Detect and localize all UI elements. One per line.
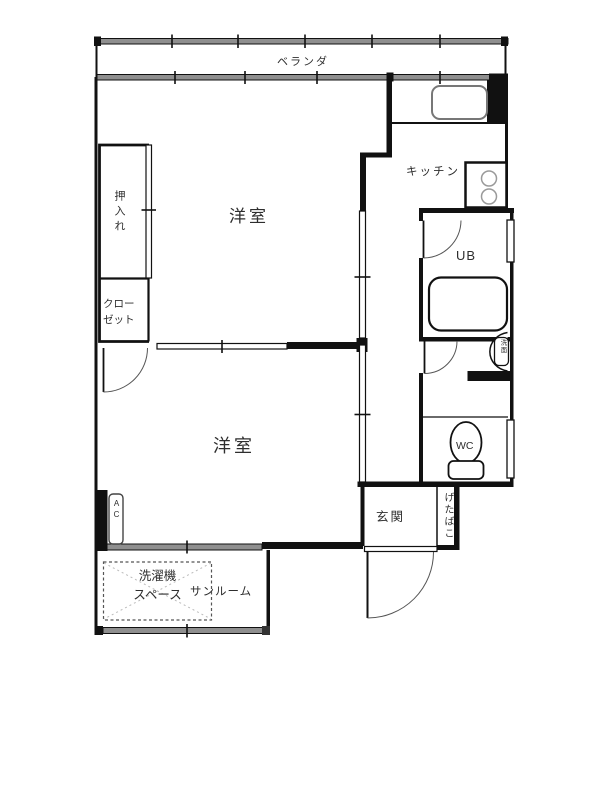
oshiire-label: 押入れ	[111, 190, 127, 235]
unit-bath-area	[419, 208, 514, 342]
kitchen-area	[360, 80, 508, 212]
washer-space-label-line1: 洗濯機	[139, 569, 177, 583]
floorplan-drawing	[0, 0, 600, 800]
balcony-label: ベランダ	[277, 53, 329, 69]
lower-room-label: 洋室	[213, 432, 255, 458]
wc-window	[507, 420, 514, 478]
kitchen-counter-dark	[487, 80, 508, 123]
wc-area	[358, 417, 515, 487]
washbasin-label: 洗面	[497, 339, 507, 354]
entrance-door-arc	[368, 552, 434, 618]
ac-label: AC	[112, 499, 121, 521]
washroom-door-arc	[425, 341, 458, 374]
unit-bath-label: UB	[456, 248, 476, 263]
oshiire-sliding-door	[146, 145, 152, 278]
wc-label: WC	[456, 440, 474, 452]
shoe-cabinet-label: げたばこ	[440, 492, 455, 540]
closet-door-arc	[104, 348, 148, 392]
kitchen-label: キッチン	[406, 163, 460, 179]
bath-window	[507, 220, 514, 262]
sunroom-label: サンルーム	[190, 583, 252, 599]
closet-label-line2: ゼット	[103, 314, 135, 326]
floorplan: ベランダ 押入れ 洋室 キッチン UB クロー ゼット 洗面 WC 洋室 玄関 …	[0, 0, 600, 800]
entrance-label: 玄関	[376, 506, 405, 525]
room-divider	[104, 338, 368, 392]
stove	[466, 163, 507, 208]
upper-room-label: 洋室	[229, 202, 269, 227]
bathtub	[429, 278, 507, 331]
closet-label-line1: クロー	[103, 298, 135, 310]
kitchen-sink	[432, 86, 487, 119]
closet-label: クロー ゼット	[103, 297, 151, 329]
outer-walls	[95, 77, 514, 635]
washer-space-label-line2: スペース	[133, 588, 182, 602]
exterior-top-windows	[97, 71, 508, 84]
lower-room-fittings	[95, 490, 364, 554]
